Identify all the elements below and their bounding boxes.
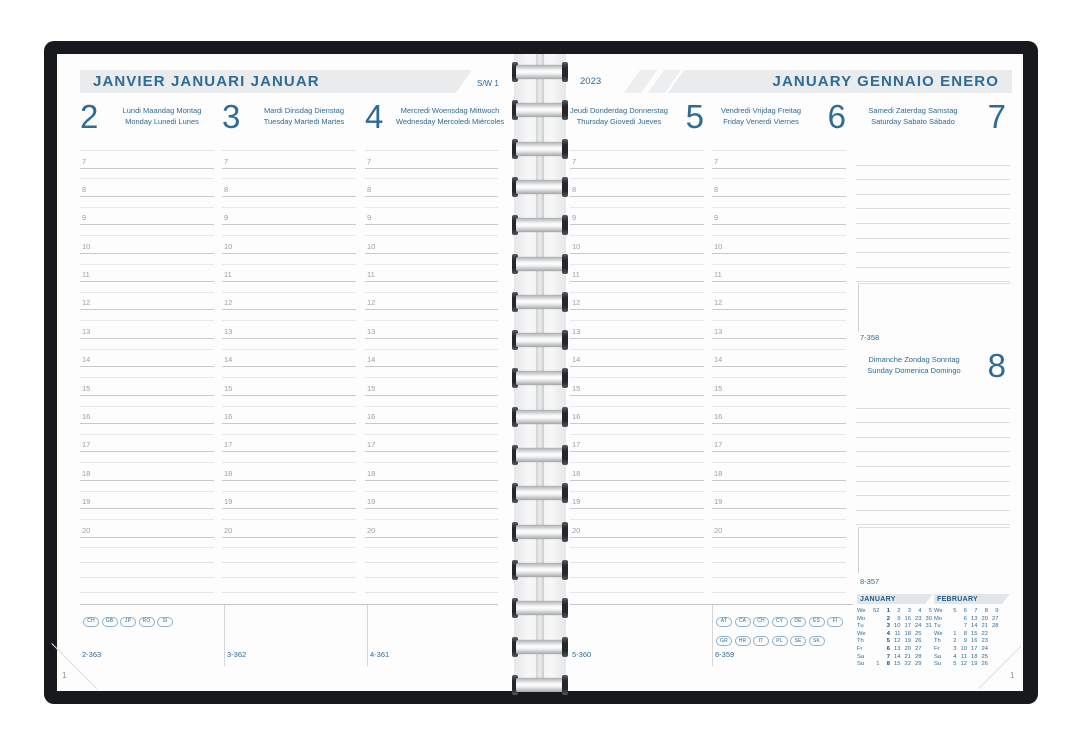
hour-slot: 19 [222, 492, 356, 510]
spiral-ring-band [516, 678, 564, 692]
half-hour-line [80, 424, 214, 435]
spiral-ring-band [516, 371, 564, 385]
hour-label: 10 [572, 242, 580, 251]
mini-calendar-date: 31 [922, 623, 933, 631]
mini-calendar-date [869, 646, 880, 654]
hour-slot: 17 [80, 435, 214, 453]
mini-calendar-february: FEBRUARYWe56789Mo6132027Tu7142128We18152… [934, 594, 1010, 669]
hour-label: 16 [572, 412, 580, 421]
hour-slot: 19 [712, 492, 846, 510]
hour-slot: 8 [365, 179, 498, 197]
mini-calendar-day-row: Fr3101724 [934, 646, 1010, 654]
hour-label: 15 [224, 384, 232, 393]
mini-calendar-date: 15 [967, 631, 978, 639]
spiral-ring-band [516, 563, 564, 577]
ruled-line [856, 482, 1010, 497]
half-hour-line [712, 538, 846, 549]
mini-calendar-date: 18 [901, 631, 912, 639]
bottom-cell-monday: CHGBJPROSI 2-363 [80, 605, 224, 666]
spiral-ring-band [516, 448, 564, 462]
hour-slot: 20 [570, 520, 704, 538]
spiral-ring-band [516, 142, 564, 156]
note-line [365, 578, 498, 593]
mini-calendar-date: 26 [911, 638, 922, 646]
mini-calendar-date: 16 [901, 616, 912, 624]
note-line [712, 548, 846, 563]
spiral-ring-end [562, 407, 568, 427]
left-month-title: JANVIER JANUARI JANUAR [93, 73, 320, 90]
half-hour-line [365, 509, 498, 520]
spiral-ring-end [562, 100, 568, 120]
spiral-ring-end [562, 62, 568, 82]
mini-calendar-day-row: Th291623 [934, 638, 1010, 646]
dayhead-monday: 2 Lundi Maandag Montag Monday Lunedi Lun… [80, 100, 214, 142]
half-hour-line [80, 396, 214, 407]
hour-slot: 19 [365, 492, 498, 510]
half-hour-line [712, 310, 846, 321]
mini-calendar-date [922, 631, 933, 639]
half-hour-line [222, 310, 356, 321]
mini-calendar-date: 8 [957, 631, 968, 639]
half-hour-line [570, 225, 704, 236]
sunday-note-box [858, 527, 1010, 573]
ruled-line [856, 452, 1010, 467]
hour-slot: 7 [80, 151, 214, 169]
ruled-line [856, 253, 1010, 268]
mini-calendar-day-row: Th5121926 [857, 638, 933, 646]
mini-calendar-date: 12 [890, 638, 901, 646]
hour-label: 16 [714, 412, 722, 421]
spiral-ring [512, 407, 568, 427]
spiral-ring-end [562, 139, 568, 159]
mini-calendar-date: 8 [880, 661, 891, 669]
spiral-ring-band [516, 333, 564, 347]
mini-calendar-date: 11 [957, 654, 968, 662]
spiral-ring [512, 62, 568, 82]
spiral-ring-band [516, 486, 564, 500]
hour-label: 13 [224, 327, 232, 336]
spiral-ring [512, 139, 568, 159]
mini-calendar-day-row: Sa7142128 [857, 654, 933, 662]
spiral-ring-end [562, 522, 568, 542]
mini-calendar-date: 24 [911, 623, 922, 631]
country-code-badge: CH [83, 617, 99, 627]
country-code-badge: HR [735, 636, 751, 646]
mini-calendar-date [988, 654, 999, 662]
note-line [570, 563, 704, 578]
mini-calendar-date: 28 [911, 654, 922, 662]
mini-calendar-date [869, 638, 880, 646]
day-of-year-saturday: 7-358 [860, 333, 879, 342]
day-number-5: 5 [686, 100, 704, 133]
mini-calendar-day-label: We [857, 631, 869, 639]
note-line [570, 548, 704, 563]
hour-slot: 18 [712, 463, 846, 481]
hour-slot: 9 [712, 208, 846, 226]
half-hour-line [365, 225, 498, 236]
day-names-monday: Lundi Maandag Montag Monday Lunedi Lunes [110, 105, 214, 128]
mini-calendar-date: 18 [967, 654, 978, 662]
spiral-ring [512, 368, 568, 388]
spiral-ring-band [516, 601, 564, 615]
hour-label: 10 [82, 242, 90, 251]
mini-calendar-date: 13 [890, 646, 901, 654]
half-hour-line [80, 509, 214, 520]
ruled-line [856, 166, 1010, 181]
hour-label: 18 [714, 469, 722, 478]
mini-calendar-date: 10 [957, 646, 968, 654]
note-line [365, 548, 498, 563]
mini-calendar-date: 17 [901, 623, 912, 631]
spiral-ring-end [562, 560, 568, 580]
hour-label: 19 [572, 497, 580, 506]
hour-label: 20 [224, 526, 232, 535]
mini-calendar-day-row: Fr6132027 [857, 646, 933, 654]
bottom-cell-friday: ATCACHCYDEESFIGRHRITPLSESK 6-359 [712, 605, 853, 666]
half-hour-line [80, 452, 214, 463]
country-code-badge: ES [809, 617, 825, 627]
mini-calendar-date [999, 631, 1010, 639]
mini-calendar-day-row: Su18152229 [857, 661, 933, 669]
mini-calendar-date [988, 646, 999, 654]
hour-slot: 11 [712, 265, 846, 283]
spiral-ring-band [516, 257, 564, 271]
hour-slot: 10 [712, 236, 846, 254]
hour-slot: 12 [570, 293, 704, 311]
half-hour-line [80, 367, 214, 378]
country-code-badge: RO [139, 617, 155, 627]
country-code-badge: JP [120, 617, 136, 627]
spiral-ring [512, 177, 568, 197]
mini-calendar-date: 7 [880, 654, 891, 662]
hour-slot: 14 [222, 350, 356, 368]
half-hour-line [570, 282, 704, 293]
ruled-line [856, 268, 1010, 283]
half-hour-line [80, 225, 214, 236]
bottom-cell-tuesday: 3-362 [224, 605, 367, 666]
mini-calendar-day-label: We [857, 608, 869, 616]
hour-label: 14 [367, 355, 375, 364]
mini-calendar-date: 19 [967, 661, 978, 669]
half-hour-line [712, 424, 846, 435]
mini-calendar-date: 6 [957, 616, 968, 624]
half-hour-line [365, 282, 498, 293]
hour-slot: 12 [80, 293, 214, 311]
mini-calendar-banner: JANUARY [857, 594, 933, 604]
hour-slot: 13 [222, 321, 356, 339]
mini-calendar-date: 20 [978, 616, 989, 624]
mini-calendar-date: 12 [957, 661, 968, 669]
hour-slot: 8 [222, 179, 356, 197]
left-bottom-box: CHGBJPROSI 2-363 3-362 4-361 [80, 604, 498, 666]
hour-slot: 16 [222, 407, 356, 425]
mini-calendar-date: 3 [901, 608, 912, 616]
hour-slot: 7 [570, 151, 704, 169]
hour-label: 19 [367, 497, 375, 506]
half-hour-line [570, 169, 704, 180]
day-number-8: 8 [988, 349, 1006, 382]
spiral-ring [512, 483, 568, 503]
hour-slot: 20 [222, 520, 356, 538]
mini-calendar-date: 1 [946, 631, 957, 639]
hour-label: 11 [714, 270, 722, 279]
ruled-line [856, 423, 1010, 438]
hour-slot: 15 [365, 378, 498, 396]
spiral-ring [512, 254, 568, 274]
hour-slot: 12 [222, 293, 356, 311]
hour-slot: 13 [570, 321, 704, 339]
hour-slot: 10 [365, 236, 498, 254]
hour-label: 8 [82, 185, 86, 194]
mini-calendar-date [922, 646, 933, 654]
mini-calendar-date: 23 [911, 616, 922, 624]
hour-label: 11 [572, 270, 580, 279]
mini-calendar-day-label: Su [857, 661, 869, 669]
spiral-ring-end [562, 598, 568, 618]
ruled-line [856, 409, 1010, 424]
hour-label: 15 [572, 384, 580, 393]
mini-calendar-date [869, 616, 880, 624]
hour-label: 17 [367, 440, 375, 449]
mini-calendar-date: 4 [946, 654, 957, 662]
hour-label: 16 [367, 412, 375, 421]
half-hour-line [570, 310, 704, 321]
mini-calendar-date: 4 [880, 631, 891, 639]
mini-calendar-date: 9 [957, 638, 968, 646]
hour-slot: 9 [80, 208, 214, 226]
mini-calendar-day-label: Mo [857, 616, 869, 624]
hour-label: 14 [224, 355, 232, 364]
half-hour-line [80, 282, 214, 293]
mini-calendar-date: 3 [946, 646, 957, 654]
hour-label: 19 [82, 497, 90, 506]
mini-calendar-day-label: Fr [934, 646, 946, 654]
half-hour-line [570, 367, 704, 378]
right-month-title: JANUARY GENNAIO ENERO [773, 73, 999, 90]
hour-slot: 11 [222, 265, 356, 283]
hour-label: 20 [572, 526, 580, 535]
mini-calendar-date: 14 [890, 654, 901, 662]
mini-calendar-date: 25 [978, 654, 989, 662]
hour-label: 20 [367, 526, 375, 535]
mini-calendar-grid: We56789Mo6132027Tu7142128We181522Th29162… [934, 608, 1010, 669]
half-hour-line [712, 367, 846, 378]
hour-label: 9 [82, 213, 86, 222]
hour-label: 9 [224, 213, 228, 222]
hour-label: 18 [572, 469, 580, 478]
mini-calendar-day-row: Tu7142128 [934, 623, 1010, 631]
half-hour-line [365, 452, 498, 463]
hour-grid-wednesday: 7891011121314151617181920 [365, 150, 498, 593]
half-hour-line [222, 538, 356, 549]
hour-slot: 16 [80, 407, 214, 425]
mini-calendar-day-row: Tu310172431 [857, 623, 933, 631]
mini-calendar-date [946, 616, 957, 624]
hour-slot: 18 [365, 463, 498, 481]
hour-slot: 12 [712, 293, 846, 311]
hour-label: 7 [714, 157, 718, 166]
half-hour-line [365, 538, 498, 549]
mini-calendar-date: 17 [967, 646, 978, 654]
spiral-ring-band [516, 65, 564, 79]
hour-slot: 7 [365, 151, 498, 169]
hour-label: 18 [224, 469, 232, 478]
half-hour-line [222, 481, 356, 492]
hour-slot: 16 [570, 407, 704, 425]
mini-calendar-day-label: We [934, 608, 946, 616]
mini-calendar-date: 1 [880, 608, 891, 616]
half-hour-line [365, 424, 498, 435]
mini-calendar-date [922, 654, 933, 662]
right-bottom-box: 5-360 ATCACHCYDEESFIGRHRITPLSESK 6-359 [570, 604, 853, 666]
day-of-year-tuesday: 3-362 [227, 650, 246, 659]
hour-label: 12 [367, 298, 375, 307]
hour-slot: 18 [80, 463, 214, 481]
hour-slot: 14 [570, 350, 704, 368]
hour-slot: 13 [80, 321, 214, 339]
hour-slot: 18 [570, 463, 704, 481]
hour-slot: 17 [365, 435, 498, 453]
country-code-badge: FI [827, 617, 843, 627]
note-line [222, 578, 356, 593]
mini-calendar-date: 26 [978, 661, 989, 669]
half-hour-line [222, 225, 356, 236]
mini-calendar-day-label: Sa [857, 654, 869, 662]
hour-label: 15 [714, 384, 722, 393]
hour-label: 11 [82, 270, 90, 279]
hour-slot: 14 [80, 350, 214, 368]
country-code-badge: CH [753, 617, 769, 627]
day-names-sunday: Dimanche Zondag Sonntag Sunday Domenica … [860, 354, 968, 377]
bottom-cell-thursday: 5-360 [570, 605, 712, 666]
hour-slot: 20 [365, 520, 498, 538]
country-code-badge: DE [790, 617, 806, 627]
mini-calendar-banner: FEBRUARY [934, 594, 1010, 604]
half-hour-line [712, 282, 846, 293]
mini-calendar-date [869, 623, 880, 631]
half-hour-line [712, 254, 846, 265]
hour-label: 18 [367, 469, 375, 478]
half-hour-line [570, 452, 704, 463]
hour-label: 13 [714, 327, 722, 336]
dayhead-saturday: Samedi Zaterdag Samstag Saturday Sabato … [856, 100, 1010, 142]
hour-label: 17 [224, 440, 232, 449]
right-month-banner: JANUARY GENNAIO ENERO [668, 70, 1012, 93]
half-hour-line [570, 424, 704, 435]
country-code-badge: SK [809, 636, 825, 646]
hour-slot: 8 [570, 179, 704, 197]
half-hour-line [365, 339, 498, 350]
mini-calendar-day-label: Su [934, 661, 946, 669]
note-line [365, 563, 498, 578]
hour-slot: 15 [570, 378, 704, 396]
half-hour-line [222, 396, 356, 407]
mini-calendar-date: 22 [901, 661, 912, 669]
mini-calendar-date [869, 631, 880, 639]
country-code-badge: IT [753, 636, 769, 646]
hour-slot: 10 [222, 236, 356, 254]
mini-calendar-date: 52 [869, 608, 880, 616]
mini-calendar-date: 24 [978, 646, 989, 654]
hour-grid-friday: 7891011121314151617181920 [712, 150, 846, 593]
mini-calendar-date: 2 [890, 608, 901, 616]
mini-calendar-date: 3 [880, 623, 891, 631]
mini-calendar-date: 7 [967, 608, 978, 616]
mini-calendar-day-label: Sa [934, 654, 946, 662]
half-hour-line [80, 197, 214, 208]
spiral-ring [512, 292, 568, 312]
hour-label: 17 [714, 440, 722, 449]
hour-slot: 7 [222, 151, 356, 169]
half-hour-line [712, 339, 846, 350]
hour-label: 11 [367, 270, 375, 279]
hour-label: 14 [714, 355, 722, 364]
mini-calendar-date: 8 [978, 608, 989, 616]
day-number-6: 6 [828, 100, 846, 133]
mini-calendar-date: 19 [901, 638, 912, 646]
dayhead-wednesday: 4 Mercredi Woensdag Mittwoch Wednesday M… [365, 100, 505, 142]
hour-slot: 15 [80, 378, 214, 396]
mini-calendar-date: 5 [880, 638, 891, 646]
mini-calendar-date [922, 661, 933, 669]
mini-calendar-date: 28 [988, 623, 999, 631]
day-number-7: 7 [988, 100, 1006, 133]
hour-slot: 12 [365, 293, 498, 311]
hour-slot: 8 [712, 179, 846, 197]
mini-calendar-date: 21 [901, 654, 912, 662]
hour-label: 7 [224, 157, 228, 166]
country-code-badge: CA [735, 617, 751, 627]
hour-label: 13 [572, 327, 580, 336]
mini-calendar-week-row: We56789 [934, 608, 1010, 616]
half-hour-line [712, 225, 846, 236]
country-code-badge: AT [716, 617, 732, 627]
hour-slot: 7 [712, 151, 846, 169]
mini-calendar-date: 27 [911, 646, 922, 654]
left-page-number: 1 [62, 671, 66, 680]
day-names-saturday: Samedi Zaterdag Samstag Saturday Sabato … [856, 105, 970, 128]
day-number-2: 2 [80, 100, 98, 133]
mini-calendar-date [988, 638, 999, 646]
hour-slot: 17 [222, 435, 356, 453]
hour-slot: 15 [222, 378, 356, 396]
ruled-line [856, 239, 1010, 254]
mini-calendar-date: 2 [946, 638, 957, 646]
hour-label: 20 [82, 526, 90, 535]
hour-label: 16 [82, 412, 90, 421]
hour-label: 12 [224, 298, 232, 307]
mini-calendar-january: JANUARYWe5212345Mo29162330Tu310172431We4… [857, 594, 933, 669]
spiral-ring-end [562, 483, 568, 503]
hour-label: 12 [82, 298, 90, 307]
day-of-year-wednesday: 4-361 [370, 650, 389, 659]
saturday-ruled-lines [856, 151, 1010, 282]
mini-calendar-date: 5 [922, 608, 933, 616]
sunday-ruled-lines [856, 394, 1010, 525]
note-line [80, 578, 214, 593]
spiral-ring-band [516, 295, 564, 309]
day-of-year-friday: 6-359 [715, 650, 734, 659]
dayhead-thursday: Jeudi Donderdag Donnerstag Thursday Giov… [570, 100, 704, 142]
hour-label: 8 [572, 185, 576, 194]
day-of-year-thursday: 5-360 [572, 650, 591, 659]
hour-label: 11 [224, 270, 232, 279]
mini-calendar-day-label: Tu [934, 623, 946, 631]
hour-slot: 19 [80, 492, 214, 510]
hour-label: 12 [572, 298, 580, 307]
mini-calendar-date [999, 608, 1010, 616]
hour-slot: 15 [712, 378, 846, 396]
